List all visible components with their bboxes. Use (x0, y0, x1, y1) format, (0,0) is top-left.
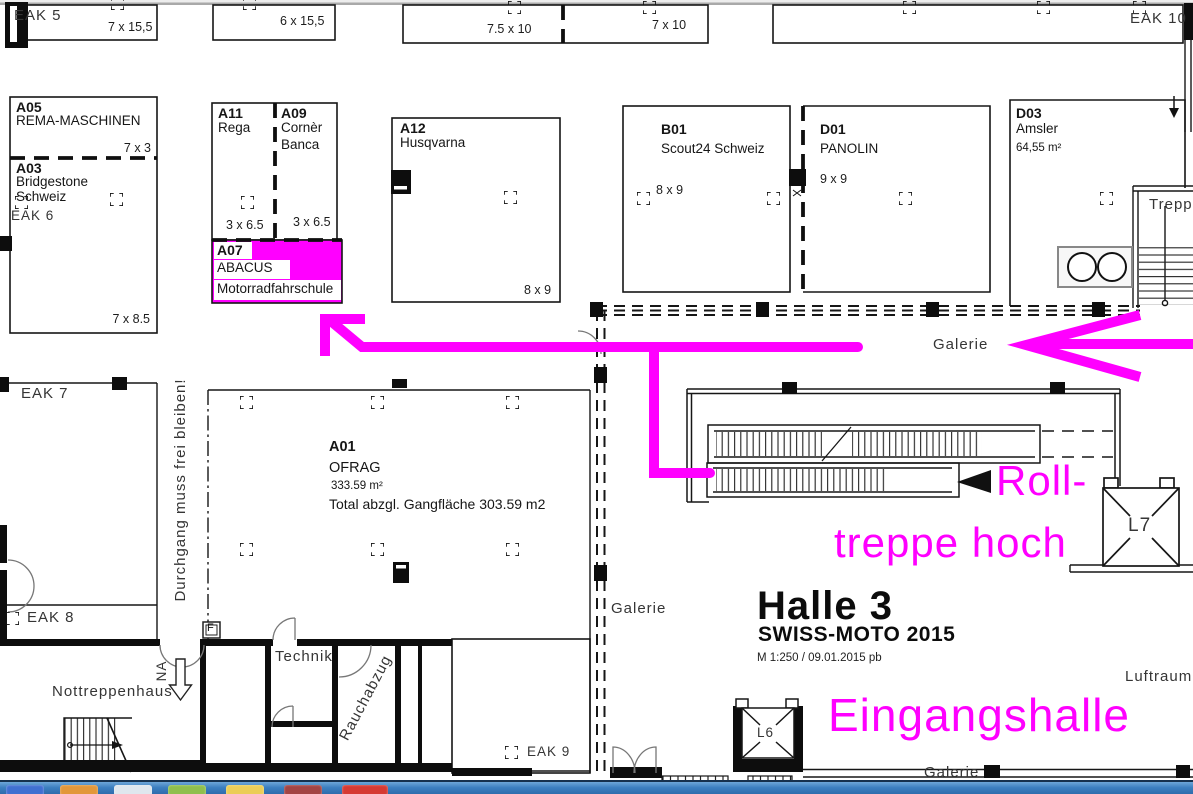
label-eak10: EAK 10 (1130, 11, 1187, 27)
title-hall: Halle 3 (757, 585, 893, 627)
label-nottreppenhaus: Nottreppenhaus (52, 684, 173, 700)
label-eak9: EAK 9 (527, 745, 570, 759)
booth-a07-name1: ABACUS (217, 261, 273, 275)
floorplan-screenshot: EAK 5 7 x 15,5 6 x 15,5 7.5 x 10 7 x 10 … (0, 0, 1193, 794)
label-eak6: EAK 6 (11, 209, 54, 223)
taskbar-app-3[interactable] (114, 785, 152, 794)
taskbar-app-4[interactable] (168, 785, 206, 794)
size-eak5: 7 x 15,5 (108, 21, 152, 34)
label-eak7: EAK 7 (21, 386, 69, 402)
booth-a09-name1: Cornèr (281, 121, 322, 135)
size-booth-75x10: 7.5 x 10 (487, 23, 531, 36)
label-luftraum: Luftraum (1125, 669, 1192, 685)
annotation-rolltreppe-line1: Roll- (996, 459, 1087, 503)
escalator-pointer-triangle (957, 470, 991, 493)
label-durchgang: Durchgang muss frei bleiben! (173, 378, 189, 601)
taskbar-app-7[interactable] (342, 785, 388, 794)
annotation-rolltreppe-line2: treppe hoch (834, 521, 1067, 565)
nottreppe-stairs (64, 718, 120, 762)
booth-a05-name: REMA-MASCHINEN (16, 114, 141, 128)
escalator-diagonal (822, 427, 851, 461)
escalator-hatch-3 (716, 469, 888, 491)
booth-a01-code: A01 (329, 440, 356, 455)
taskbar-app-2[interactable] (60, 785, 98, 794)
booth-a11-code: A11 (218, 106, 243, 121)
booth-a03-name1: Bridgestone (16, 175, 88, 189)
booth-a11-size: 3 x 6.5 (226, 219, 264, 232)
booth-a12-code: A12 (400, 121, 426, 136)
booth-d03-area: 64,55 m² (1016, 142, 1061, 154)
label-galerie-left: Galerie (611, 601, 666, 617)
booth-d01-size: 9 x 9 (820, 173, 847, 186)
escalator-dashed-extension (1042, 431, 1113, 457)
booth-d03-name: Amsler (1016, 122, 1058, 136)
booth-a09-size: 3 x 6.5 (293, 216, 331, 229)
treppe-stairs (1139, 243, 1193, 305)
annotation-eingangshalle: Eingangshalle (828, 691, 1130, 739)
taskbar-app-5[interactable] (226, 785, 264, 794)
booth-a01-note: Total abzgl. Gangfläche 303.59 m2 (329, 497, 545, 512)
booth-b01-code: B01 (661, 122, 687, 137)
escalator-hatch-1 (716, 432, 822, 456)
booth-a11-name: Rega (218, 121, 250, 135)
booth-a03-size: 7 x 8.5 (98, 313, 150, 326)
label-galerie-bottom: Galerie (924, 765, 979, 781)
booth-a01-name: OFRAG (329, 461, 381, 476)
taskbar-app-6[interactable] (284, 785, 322, 794)
label-l7: L7 (1128, 516, 1151, 536)
taskbar-app-1[interactable] (6, 785, 44, 794)
label-galerie-upper: Galerie (933, 337, 988, 353)
booth-a03-name2: Schweiz (16, 190, 66, 204)
size-booth-7x10: 7 x 10 (652, 19, 686, 32)
booth-d01-code: D01 (820, 122, 846, 137)
booth-a07-name2: Motorradfahrschule (217, 282, 333, 296)
windows-taskbar[interactable] (0, 780, 1193, 794)
booth-a01-area: 333.59 m² (331, 480, 383, 492)
booth-d01-name: PANOLIN (820, 142, 878, 156)
label-treppe: Treppe (1149, 197, 1193, 213)
booth-a05-size: 7 x 3 (103, 142, 151, 155)
booth-a07-code: A07 (217, 243, 243, 258)
booth-b01-name: Scout24 Schweiz (661, 142, 765, 156)
label-f-symbol: F (207, 623, 214, 635)
label-eak5: EAK 5 (14, 8, 62, 24)
booth-d03-code: D03 (1016, 106, 1042, 121)
booth-a12-size: 8 x 9 (524, 284, 551, 297)
title-meta: M 1:250 / 09.01.2015 pb (757, 652, 882, 664)
size-booth-6x155: 6 x 15,5 (280, 15, 324, 28)
booth-b01-size: 8 x 9 (656, 184, 683, 197)
label-na: NA (155, 661, 169, 682)
escalator-hatch-2 (852, 432, 982, 456)
label-technik: Technik (275, 649, 333, 665)
booth-a09-code: A09 (281, 106, 307, 121)
label-l6: L6 (757, 726, 774, 740)
booth-a12-name: Husqvarna (400, 136, 465, 150)
booth-a09-name2: Banca (281, 138, 319, 152)
label-eak8: EAK 8 (27, 610, 75, 626)
title-event: SWISS-MOTO 2015 (758, 624, 955, 646)
